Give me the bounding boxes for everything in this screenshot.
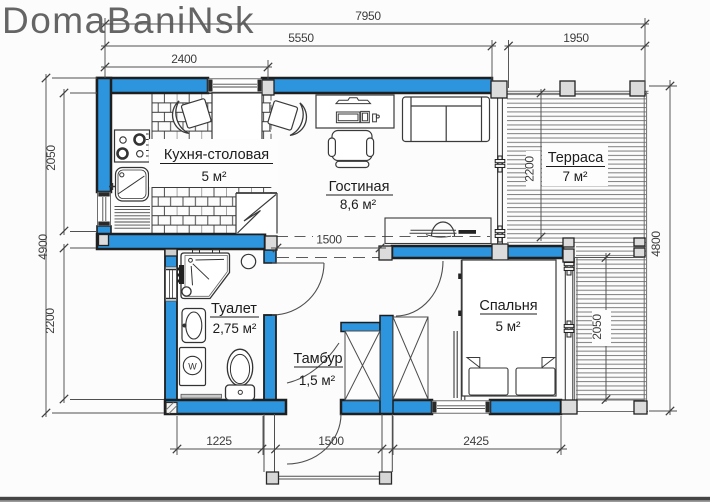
- svg-text:2200: 2200: [43, 308, 57, 334]
- svg-text:DomaBaniNsk: DomaBaniNsk: [2, 0, 255, 41]
- svg-text:W: W: [188, 361, 197, 371]
- svg-text:2,75 м²: 2,75 м²: [213, 321, 257, 336]
- svg-text:1500: 1500: [318, 434, 344, 448]
- svg-text:1,5 м²: 1,5 м²: [299, 373, 336, 388]
- svg-text:5 м²: 5 м²: [495, 319, 521, 334]
- svg-text:7950: 7950: [355, 9, 381, 23]
- svg-text:1950: 1950: [563, 31, 589, 45]
- svg-text:8,6 м²: 8,6 м²: [340, 197, 377, 212]
- svg-text:1500: 1500: [316, 233, 342, 247]
- svg-text:Туалет: Туалет: [211, 301, 257, 317]
- svg-text:1225: 1225: [206, 434, 232, 448]
- svg-text:Терраса: Терраса: [548, 150, 605, 166]
- svg-text:2050: 2050: [590, 314, 604, 340]
- svg-text:7 м²: 7 м²: [562, 169, 588, 184]
- svg-text:2425: 2425: [463, 434, 489, 448]
- svg-text:4800: 4800: [649, 231, 663, 257]
- svg-text:Гостиная: Гостиная: [329, 179, 390, 195]
- svg-text:Спальня: Спальня: [479, 298, 537, 314]
- svg-text:5550: 5550: [288, 31, 314, 45]
- svg-text:2200: 2200: [523, 156, 537, 182]
- svg-text:2050: 2050: [44, 145, 58, 171]
- svg-text:4900: 4900: [36, 234, 50, 260]
- svg-text:Тамбур: Тамбур: [293, 351, 342, 367]
- svg-text:2400: 2400: [171, 52, 197, 66]
- svg-text:5 м²: 5 м²: [201, 169, 227, 184]
- svg-text:Кухня-столовая: Кухня-столовая: [164, 147, 269, 163]
